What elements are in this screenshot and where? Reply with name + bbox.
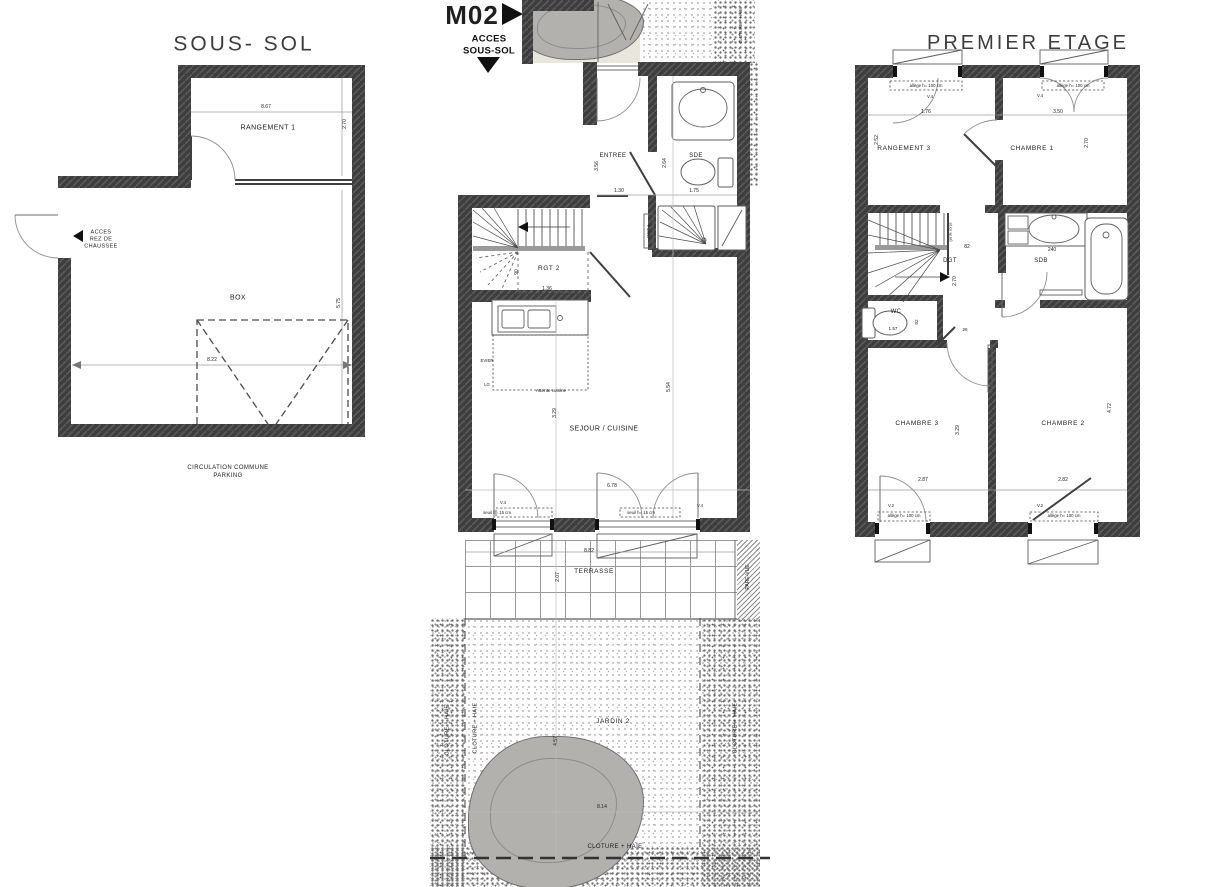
dim-rgt2-w: 1.36 [542, 286, 552, 293]
label-cloture-left1: CLOTURE + HAIE [444, 705, 451, 756]
label-seuil-left: seuil h= 15 cm [483, 510, 511, 516]
label-v4-top-left: V.4 [927, 94, 933, 100]
staircase [473, 208, 630, 297]
rdc-linework [430, 0, 770, 887]
label-lg: LG [484, 382, 490, 388]
dim-jardin-h: 4.57 [553, 736, 560, 746]
label-v4-top-right: V.4 [1037, 93, 1043, 99]
dim-rangement1-width: 8.67 [261, 104, 271, 111]
dim-sejour-w: 6.78 [607, 483, 617, 490]
sous-sol-partitions [191, 136, 352, 184]
shower-area [644, 206, 746, 250]
stair-door-leaf [590, 252, 630, 297]
dim-chambre3-w: 2.87 [918, 477, 928, 484]
label-rgt2: RGT 2 [538, 265, 560, 273]
label-cloture-right: CLOTURE + HAIE [732, 703, 739, 754]
dim-entree-w: 1.30 [614, 188, 624, 195]
label-acces-rdc: ACCES REZ DE CHAUSSEE [84, 229, 117, 250]
front-yard-gate [598, 2, 648, 62]
etage-bottom-windows [875, 476, 1098, 564]
etage-linework [845, 25, 1155, 555]
etage-walls [855, 65, 1140, 537]
dim-jardin-w: 8.14 [597, 804, 607, 811]
sous-sol-ext-door [15, 215, 58, 258]
dim-chambre1-h: 2.70 [1084, 138, 1091, 148]
rgt2-dashed [476, 252, 588, 293]
label-cloture-left2: CLOTURE + HAIE [472, 703, 479, 754]
label-v4-right: V.4 [697, 503, 703, 509]
sous-sol-linework [10, 60, 390, 500]
label-sejour-cuisine: SEJOUR / CUISINE [569, 424, 638, 433]
dim-terrasse-w: 8.82 [584, 548, 594, 555]
label-pare-vue: PARE-VUE [745, 564, 752, 589]
door-arc-rangement1 [191, 136, 235, 180]
label-sde: SDE [689, 153, 703, 161]
dim-sdb-w: 240 [1048, 247, 1056, 254]
dim-box-width: 8.22 [207, 357, 217, 364]
label-jardin: JARDIN 2 [596, 718, 630, 726]
dim-sde-h: 2.64 [662, 158, 669, 168]
label-v2-bottom-left: V.2 [888, 503, 894, 509]
entrance-door [597, 66, 640, 121]
toilet-bowl [681, 159, 715, 185]
sde-fixtures [672, 82, 734, 187]
label-evier: EVIER [481, 358, 494, 364]
unit-marker: M02 [445, 0, 499, 33]
label-rgt1: RGT 1 [646, 224, 652, 237]
label-v2-bottom-right: V.2 [1037, 503, 1043, 509]
arrow-down-icon [477, 57, 500, 73]
label-acces-sous-sol: ACCES SOUS-SOL [463, 34, 515, 59]
label-chambre1: CHAMBRE 1 [1010, 145, 1053, 153]
label-garde-corps: garde corps [949, 223, 954, 242]
sdb-fixtures [1005, 213, 1128, 300]
label-v4-left: V.4 [500, 500, 506, 506]
label-box: BOX [230, 293, 246, 302]
label-cloture-top: CLOTURE + HAIE [738, 8, 744, 43]
sous-sol-title: SOUS- SOL [173, 30, 314, 57]
dim-dgt-h: 2.70 [952, 276, 959, 286]
label-attente-cuisine: Attente cuisine [536, 388, 566, 394]
dim-chambre1-w: 3.50 [1053, 109, 1063, 116]
floorplan-sheet: SOUS- SOL RANGEMENT 1 8.67 2.70 BOX 8.22… [0, 0, 1211, 887]
arrow-right-icon [502, 3, 523, 25]
label-entree: ENTREE [600, 153, 627, 161]
dim-corridor: 26 [962, 327, 967, 333]
dim-rgt2-h: 90 [514, 269, 521, 275]
label-cloture-bottom: CLOTURE + HAIE [587, 844, 642, 852]
etage-stairs [868, 213, 950, 302]
label-allege-top-left: allège h= 100 cm [910, 83, 943, 89]
stair-direction-arrow [518, 222, 528, 232]
dim-box-height: 5.75 [336, 298, 343, 308]
sous-sol-walls [58, 65, 365, 437]
dim-rangement1-height: 2.70 [342, 119, 349, 129]
label-rangement1: RANGEMENT 1 [241, 123, 296, 132]
label-sdb: SDB [1034, 258, 1048, 266]
label-terrasse: TERRASSE [574, 568, 614, 576]
rangement3-door [964, 120, 997, 167]
dim-sde-w: 1.75 [689, 188, 699, 195]
label-allege-top-right: allège h= 100 cm [1057, 83, 1090, 89]
label-rangement3: RANGEMENT 3 [877, 145, 930, 153]
dim-terrasse-h: 2.07 [555, 572, 562, 582]
dim-chambre3-h: 3.29 [955, 425, 962, 435]
dim-dgt-w: 82 [964, 244, 970, 251]
label-chambre3: CHAMBRE 3 [895, 420, 938, 428]
terrasse-jardin-lines [430, 540, 770, 858]
dim-wc-w: 1.57 [889, 326, 898, 332]
cloture-side-lines [465, 618, 700, 858]
label-allege-bottom-right: allège h= 100 cm [1048, 513, 1081, 519]
dim-chambre2-w: 2.82 [1058, 477, 1068, 484]
garage-door-marking [197, 320, 348, 430]
dim-sejour-h1: 3.29 [552, 408, 559, 418]
label-wc: WC [891, 309, 902, 317]
label-circulation-parking: CIRCULATION COMMUNE PARKING [187, 465, 268, 481]
toilet-tank [718, 158, 733, 187]
dim-chambre2-h: 4.72 [1107, 403, 1114, 413]
label-dgt: DGT [943, 258, 957, 266]
dim-rangement3-h: 2.52 [874, 135, 881, 145]
label-allege-bottom-left: allège h= 100 cm [888, 513, 921, 519]
towel-bar [1040, 290, 1082, 295]
sous-sol-dimension-lines [72, 78, 352, 424]
dim-rangement3-w: 1.76 [921, 109, 931, 116]
label-chambre2: CHAMBRE 2 [1041, 420, 1084, 428]
dim-entree-h: 3.56 [594, 161, 601, 171]
attente-cuisine-zone [493, 335, 588, 390]
label-seuil-right: seuil h= 15 cm [627, 510, 655, 516]
dim-wc-h: 92 [914, 319, 920, 324]
dim-sejour-h2: 5.54 [666, 382, 673, 392]
etage-title: PREMIER ETAGE [927, 30, 1129, 56]
kitchen [492, 300, 588, 390]
arrow-left-icon [73, 230, 83, 242]
chambre-doors [947, 343, 992, 392]
rdc-walls [458, 0, 750, 532]
